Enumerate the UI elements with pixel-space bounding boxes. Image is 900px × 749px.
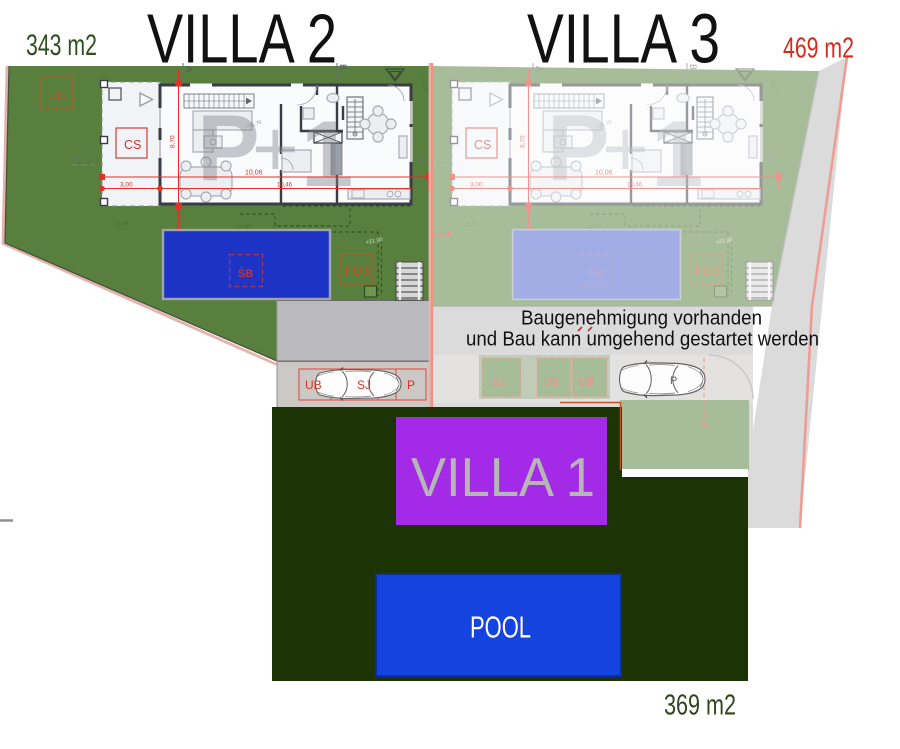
svg-text:POOL: POOL bbox=[470, 611, 531, 645]
svg-text:P: P bbox=[407, 378, 415, 392]
svg-text:SJ: SJ bbox=[357, 378, 371, 392]
svg-text:VILLA 1: VILLA 1 bbox=[411, 446, 595, 508]
svg-text:UB: UB bbox=[305, 378, 322, 392]
svg-text:UB: UB bbox=[579, 376, 594, 388]
svg-text:Baugenehmigung vorhanden: Baugenehmigung vorhanden bbox=[521, 308, 762, 330]
svg-text:und Bau kann umgehend gestarte: und Bau kann umgehend gestartet werden bbox=[466, 329, 819, 351]
svg-text:UB: UB bbox=[544, 376, 559, 388]
svg-text:P: P bbox=[670, 375, 677, 387]
svg-text:UB: UB bbox=[48, 89, 65, 103]
svg-text:SJ: SJ bbox=[492, 376, 505, 388]
svg-text:VILLA 3: VILLA 3 bbox=[527, 0, 720, 78]
svg-text:469 m2: 469 m2 bbox=[783, 33, 854, 65]
svg-text:343 m2: 343 m2 bbox=[26, 29, 97, 62]
svg-text:VILLA 2: VILLA 2 bbox=[147, 0, 337, 78]
svg-text:369 m2: 369 m2 bbox=[664, 690, 736, 722]
